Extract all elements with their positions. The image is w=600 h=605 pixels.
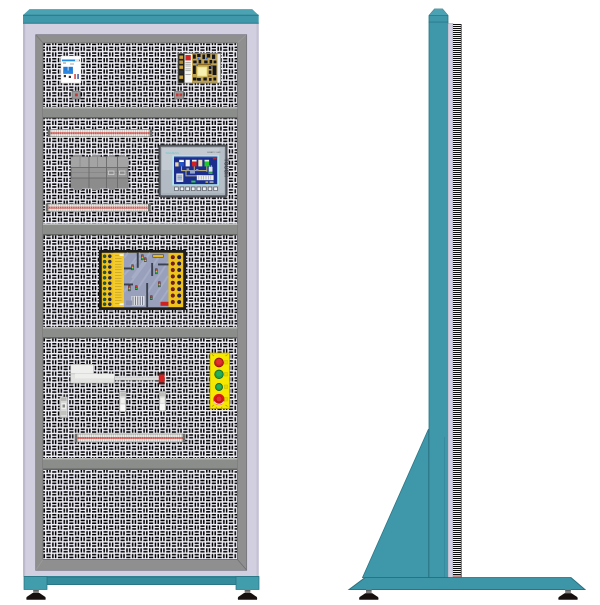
svg-text:SIMATIC HMI: SIMATIC HMI [207, 151, 221, 154]
svg-text:SIEMENS: SIEMENS [166, 151, 180, 155]
